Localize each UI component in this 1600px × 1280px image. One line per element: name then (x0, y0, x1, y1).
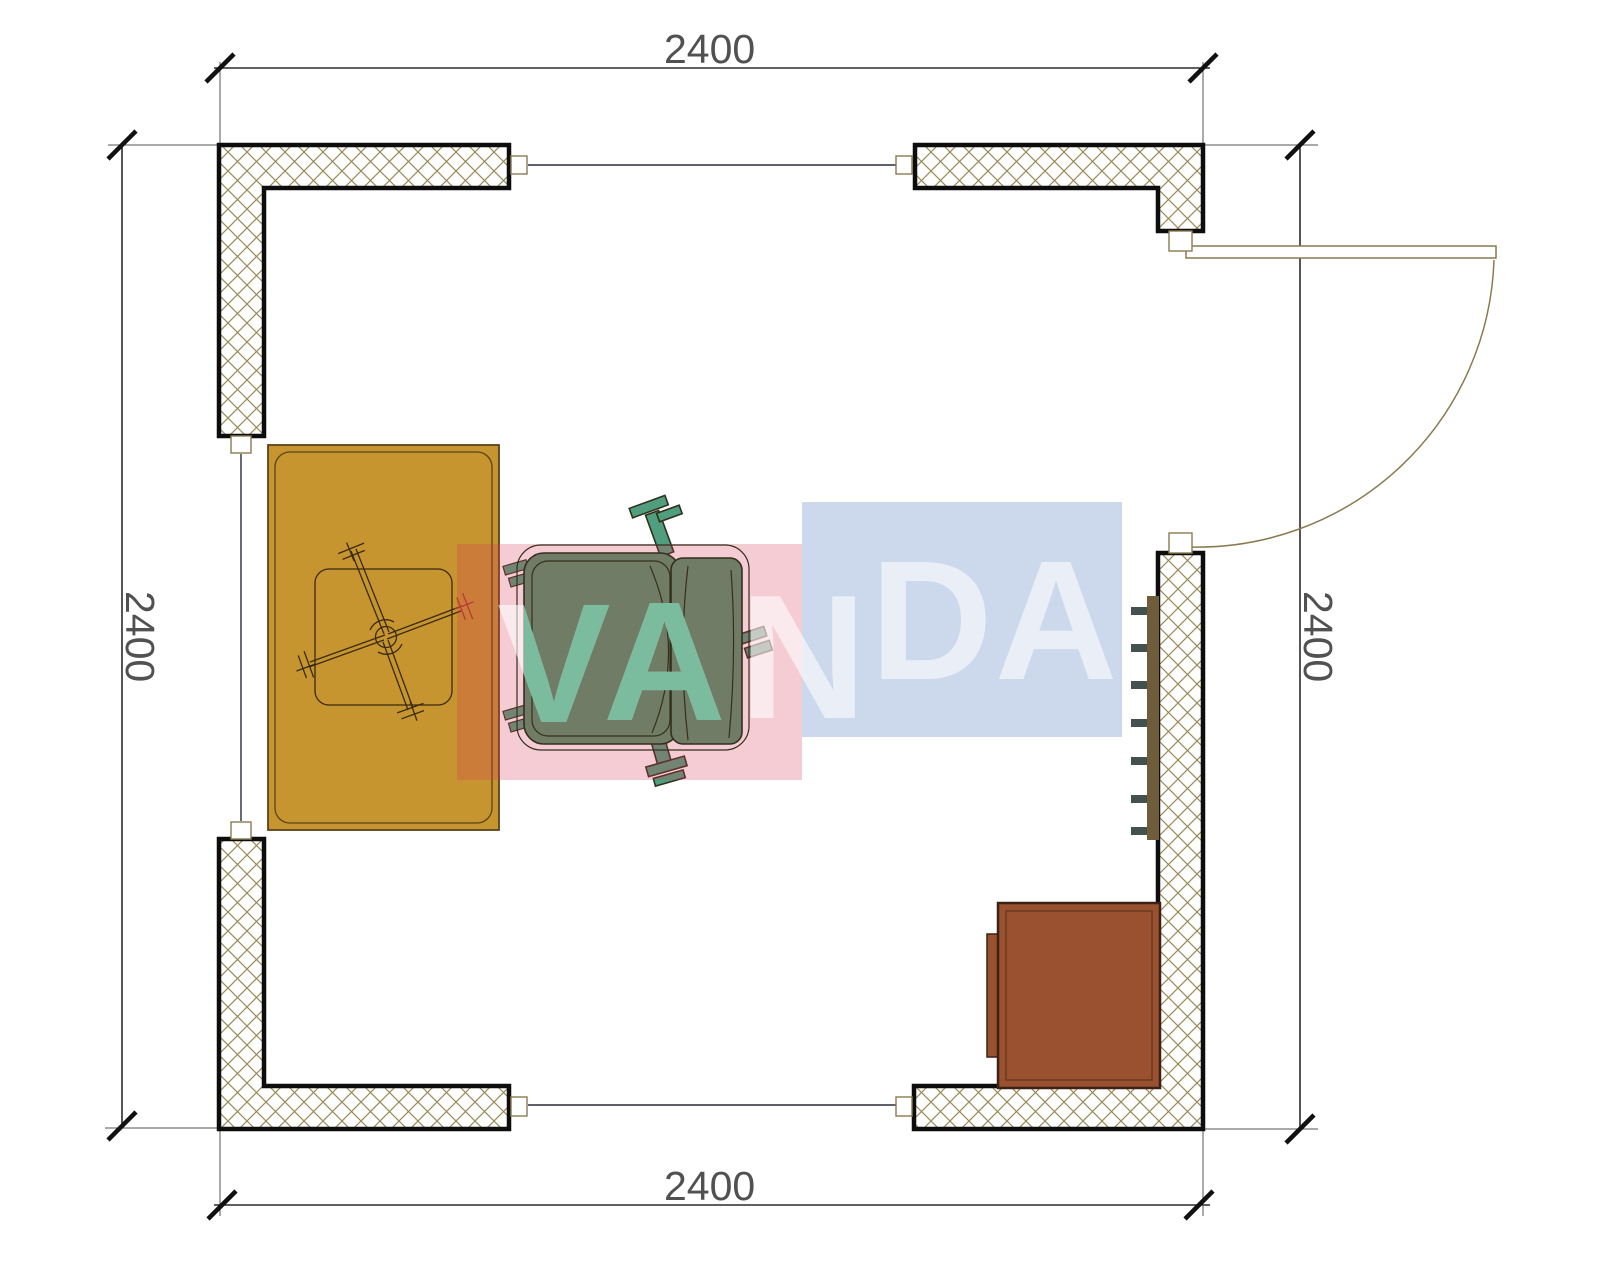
svg-text:A: A (995, 526, 1118, 716)
svg-text:A: A (603, 567, 726, 757)
svg-text:2400: 2400 (664, 26, 755, 72)
svg-text:2400: 2400 (664, 1163, 755, 1209)
svg-text:2400: 2400 (1295, 591, 1341, 682)
svg-text:D: D (870, 526, 993, 716)
svg-text:N: N (739, 558, 867, 756)
svg-text:2400: 2400 (117, 591, 163, 682)
